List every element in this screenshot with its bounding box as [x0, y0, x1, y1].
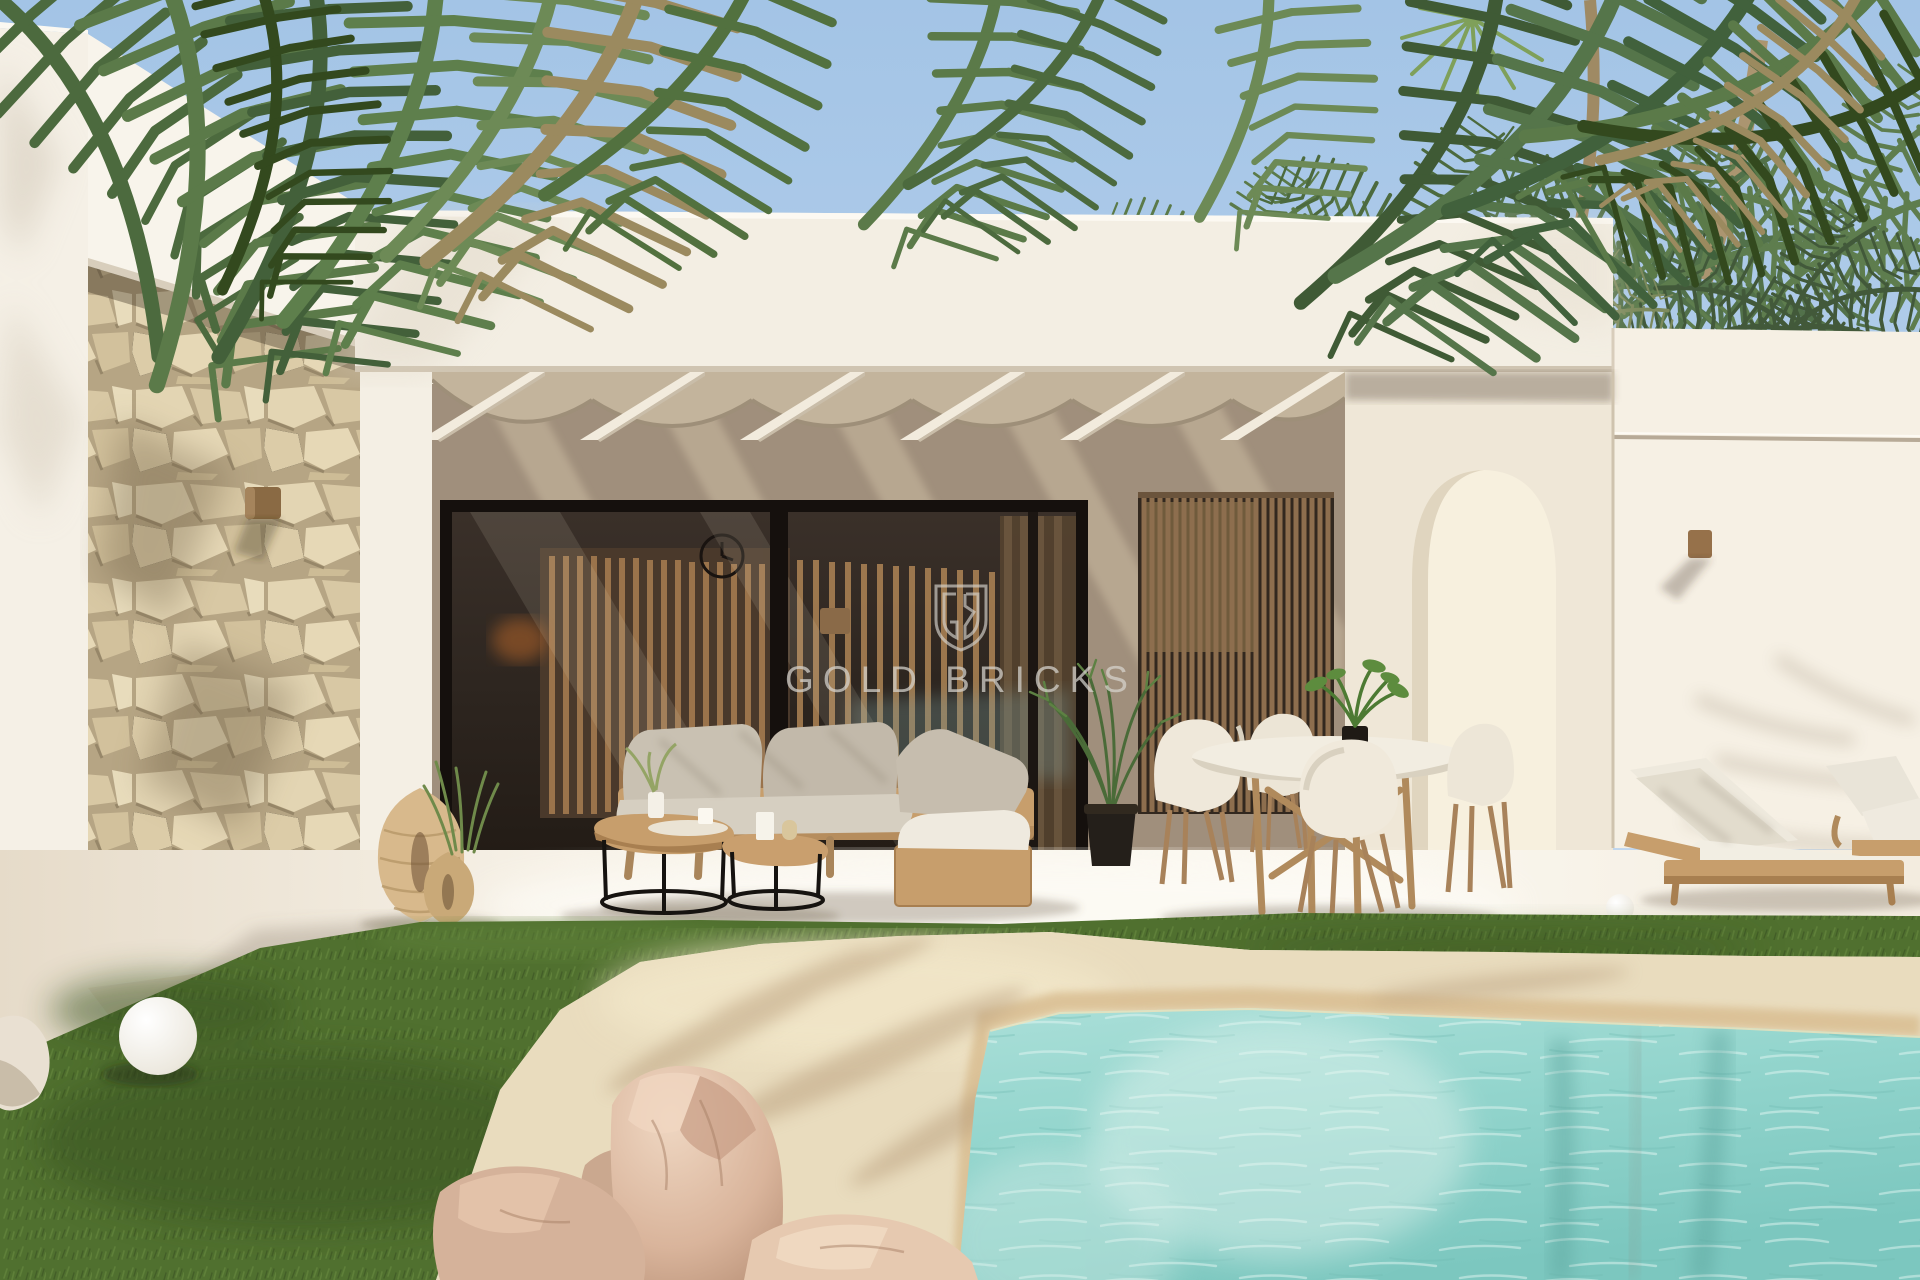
- watermark-text: GOLD BRICKS: [785, 659, 1137, 700]
- door-handle: [820, 608, 850, 634]
- ottoman-daybed: [895, 810, 1031, 906]
- arch-opening: [1412, 470, 1556, 898]
- villa-render: GOLD BRICKS: [0, 0, 1920, 1280]
- pool-water: [940, 1000, 1920, 1280]
